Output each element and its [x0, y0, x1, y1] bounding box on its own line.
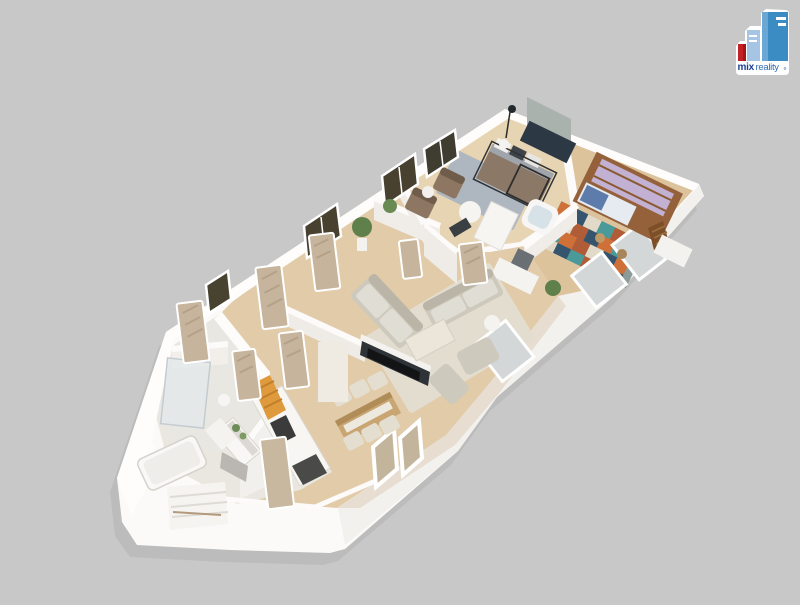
svg-text:reality: reality	[756, 62, 780, 73]
svg-text:mix: mix	[738, 62, 755, 73]
